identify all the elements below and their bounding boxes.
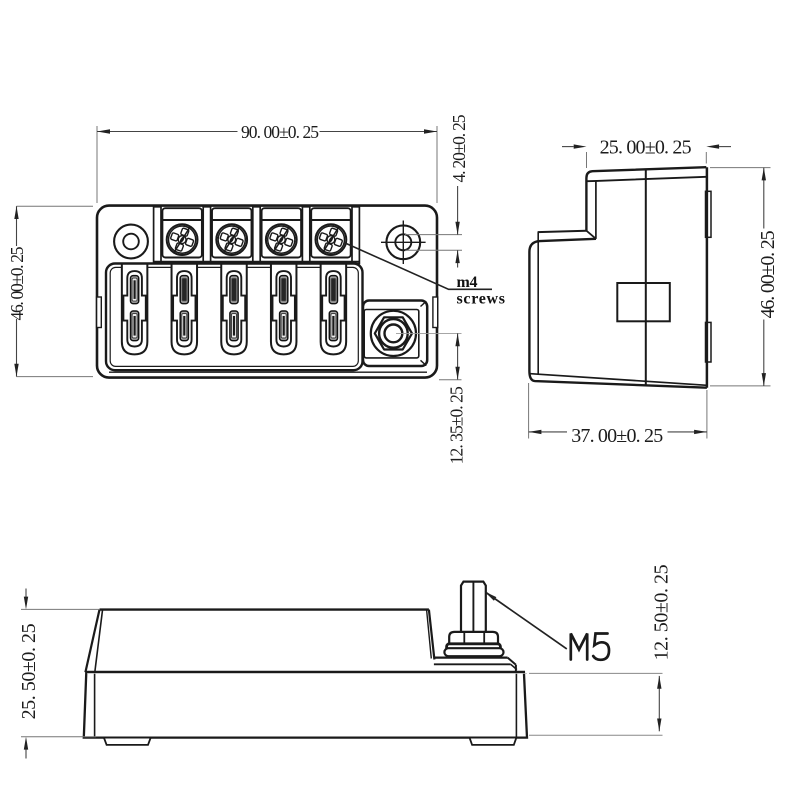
svg-text:12. 50±0. 25: 12. 50±0. 25 [650, 564, 672, 660]
svg-text:37. 00±0. 25: 37. 00±0. 25 [571, 425, 663, 447]
svg-text:12. 35±0. 25: 12. 35±0. 25 [447, 386, 467, 464]
svg-text:screws: screws [457, 291, 506, 308]
svg-text:90. 00±0. 25: 90. 00±0. 25 [241, 122, 319, 142]
svg-text:25. 00±0. 25: 25. 00±0. 25 [600, 137, 692, 159]
svg-text:25. 50±0. 25: 25. 50±0. 25 [18, 623, 40, 719]
svg-text:46. 00±0. 25: 46. 00±0. 25 [757, 230, 779, 318]
svg-text:4. 20±0. 25: 4. 20±0. 25 [449, 114, 469, 182]
svg-text:46. 00±0. 25: 46. 00±0. 25 [7, 246, 27, 320]
svg-text:m4: m4 [457, 274, 478, 291]
